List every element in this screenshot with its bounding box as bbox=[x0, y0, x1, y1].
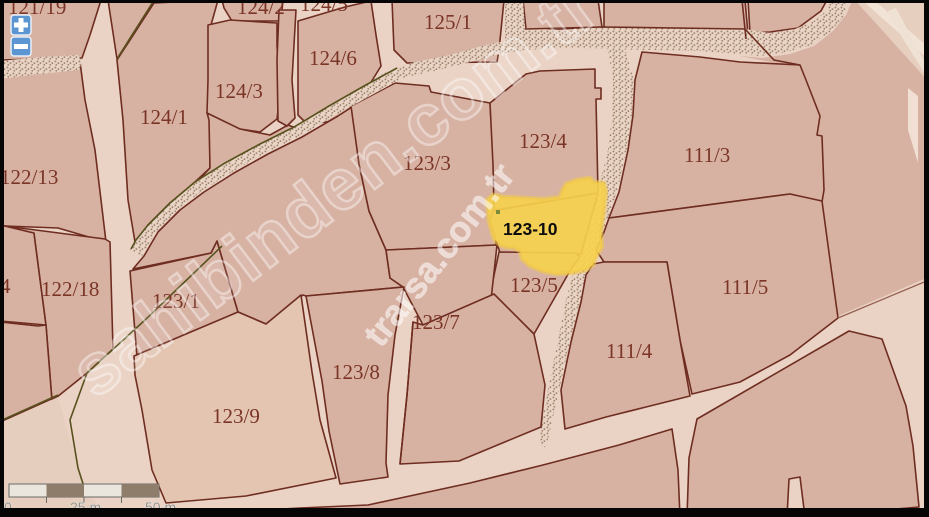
svg-text:122/18: 122/18 bbox=[41, 277, 99, 301]
svg-text:123/5: 123/5 bbox=[510, 273, 558, 297]
svg-text:123/9: 123/9 bbox=[212, 404, 260, 428]
svg-text:124/6: 124/6 bbox=[309, 46, 357, 70]
svg-text:124/1: 124/1 bbox=[140, 105, 188, 129]
svg-text:111/4: 111/4 bbox=[606, 339, 653, 363]
svg-text:123/8: 123/8 bbox=[332, 360, 380, 384]
svg-text:123/4: 123/4 bbox=[519, 129, 567, 153]
svg-text:122/13: 122/13 bbox=[0, 165, 58, 189]
svg-text:111/5: 111/5 bbox=[722, 275, 768, 299]
svg-text:111/3: 111/3 bbox=[684, 143, 730, 167]
svg-text:123-10: 123-10 bbox=[503, 219, 558, 239]
svg-text:123/7: 123/7 bbox=[412, 310, 460, 334]
svg-text:125/1: 125/1 bbox=[424, 10, 472, 34]
svg-text:124/3: 124/3 bbox=[215, 79, 263, 103]
